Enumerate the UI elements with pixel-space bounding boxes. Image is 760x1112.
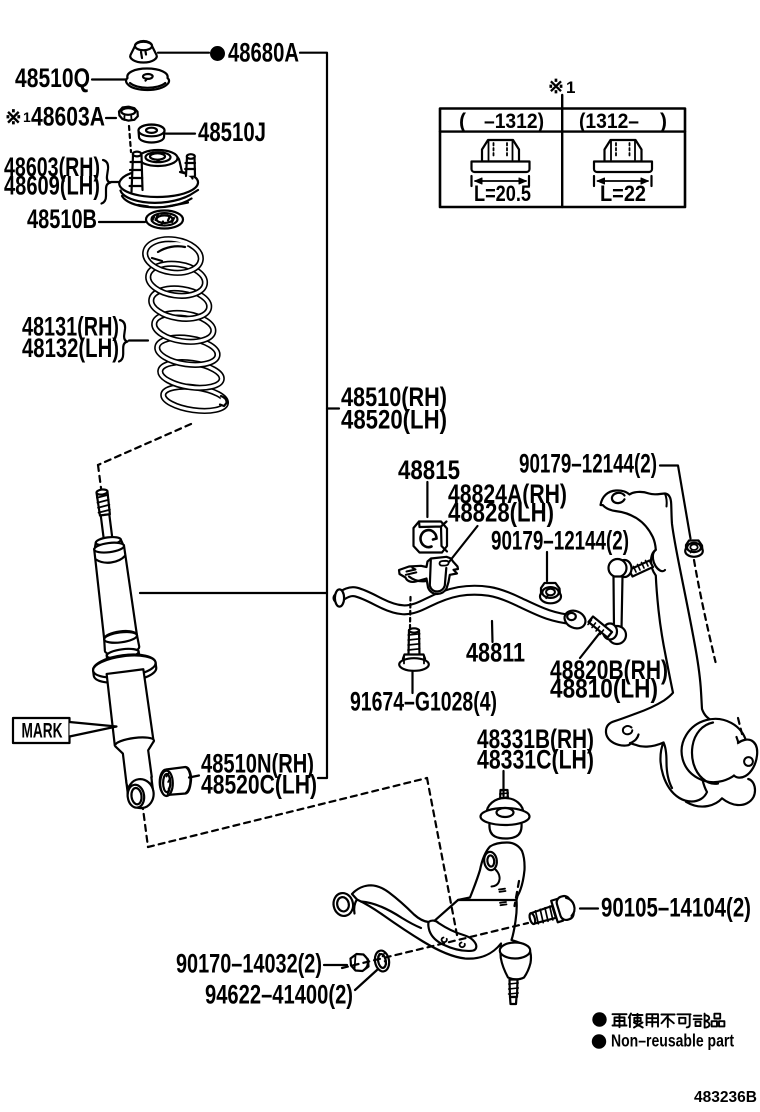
svg-text:1: 1 (566, 78, 575, 97)
svg-text:90170–14032(2): 90170–14032(2) (176, 949, 322, 979)
svg-text:L=22: L=22 (600, 181, 646, 206)
svg-text:Non–reusable part: Non–reusable part (611, 1031, 734, 1051)
svg-text:48811: 48811 (466, 638, 525, 668)
svg-text:1: 1 (23, 109, 31, 125)
svg-text:48810(LH): 48810(LH) (550, 674, 658, 704)
svg-text:91674–G1028(4): 91674–G1028(4) (350, 687, 497, 717)
svg-text:48510J: 48510J (198, 117, 266, 147)
svg-text:48520C(LH): 48520C(LH) (201, 770, 317, 800)
svg-text:MARK: MARK (22, 720, 63, 743)
svg-text:–1312): –1312) (484, 110, 544, 133)
svg-text:48680A: 48680A (228, 38, 299, 68)
svg-text:483236B: 483236B (694, 1089, 757, 1106)
svg-text:48603A: 48603A (31, 102, 105, 132)
svg-text:(: ( (459, 110, 466, 133)
svg-text:48520(LH): 48520(LH) (341, 405, 447, 435)
svg-text:48828(LH): 48828(LH) (448, 498, 554, 528)
svg-text:90179–12144(2): 90179–12144(2) (491, 526, 629, 556)
svg-text:48132(LH): 48132(LH) (22, 333, 119, 363)
svg-text:48510B: 48510B (27, 204, 97, 234)
svg-text:48609(LH): 48609(LH) (4, 171, 100, 201)
svg-text:※: ※ (548, 77, 564, 98)
svg-text:※: ※ (5, 107, 22, 129)
svg-text:90179–12144(2): 90179–12144(2) (519, 449, 657, 479)
svg-text:(1312–: (1312– (579, 110, 639, 133)
svg-text:48815: 48815 (398, 455, 460, 485)
svg-text:90105–14104(2): 90105–14104(2) (601, 893, 751, 923)
svg-text:): ) (660, 110, 667, 133)
svg-text:L=20.5: L=20.5 (474, 181, 531, 206)
svg-text:94622–41400(2): 94622–41400(2) (205, 980, 353, 1010)
svg-text:48510Q: 48510Q (15, 63, 90, 93)
svg-text:48331C(LH): 48331C(LH) (477, 745, 594, 775)
